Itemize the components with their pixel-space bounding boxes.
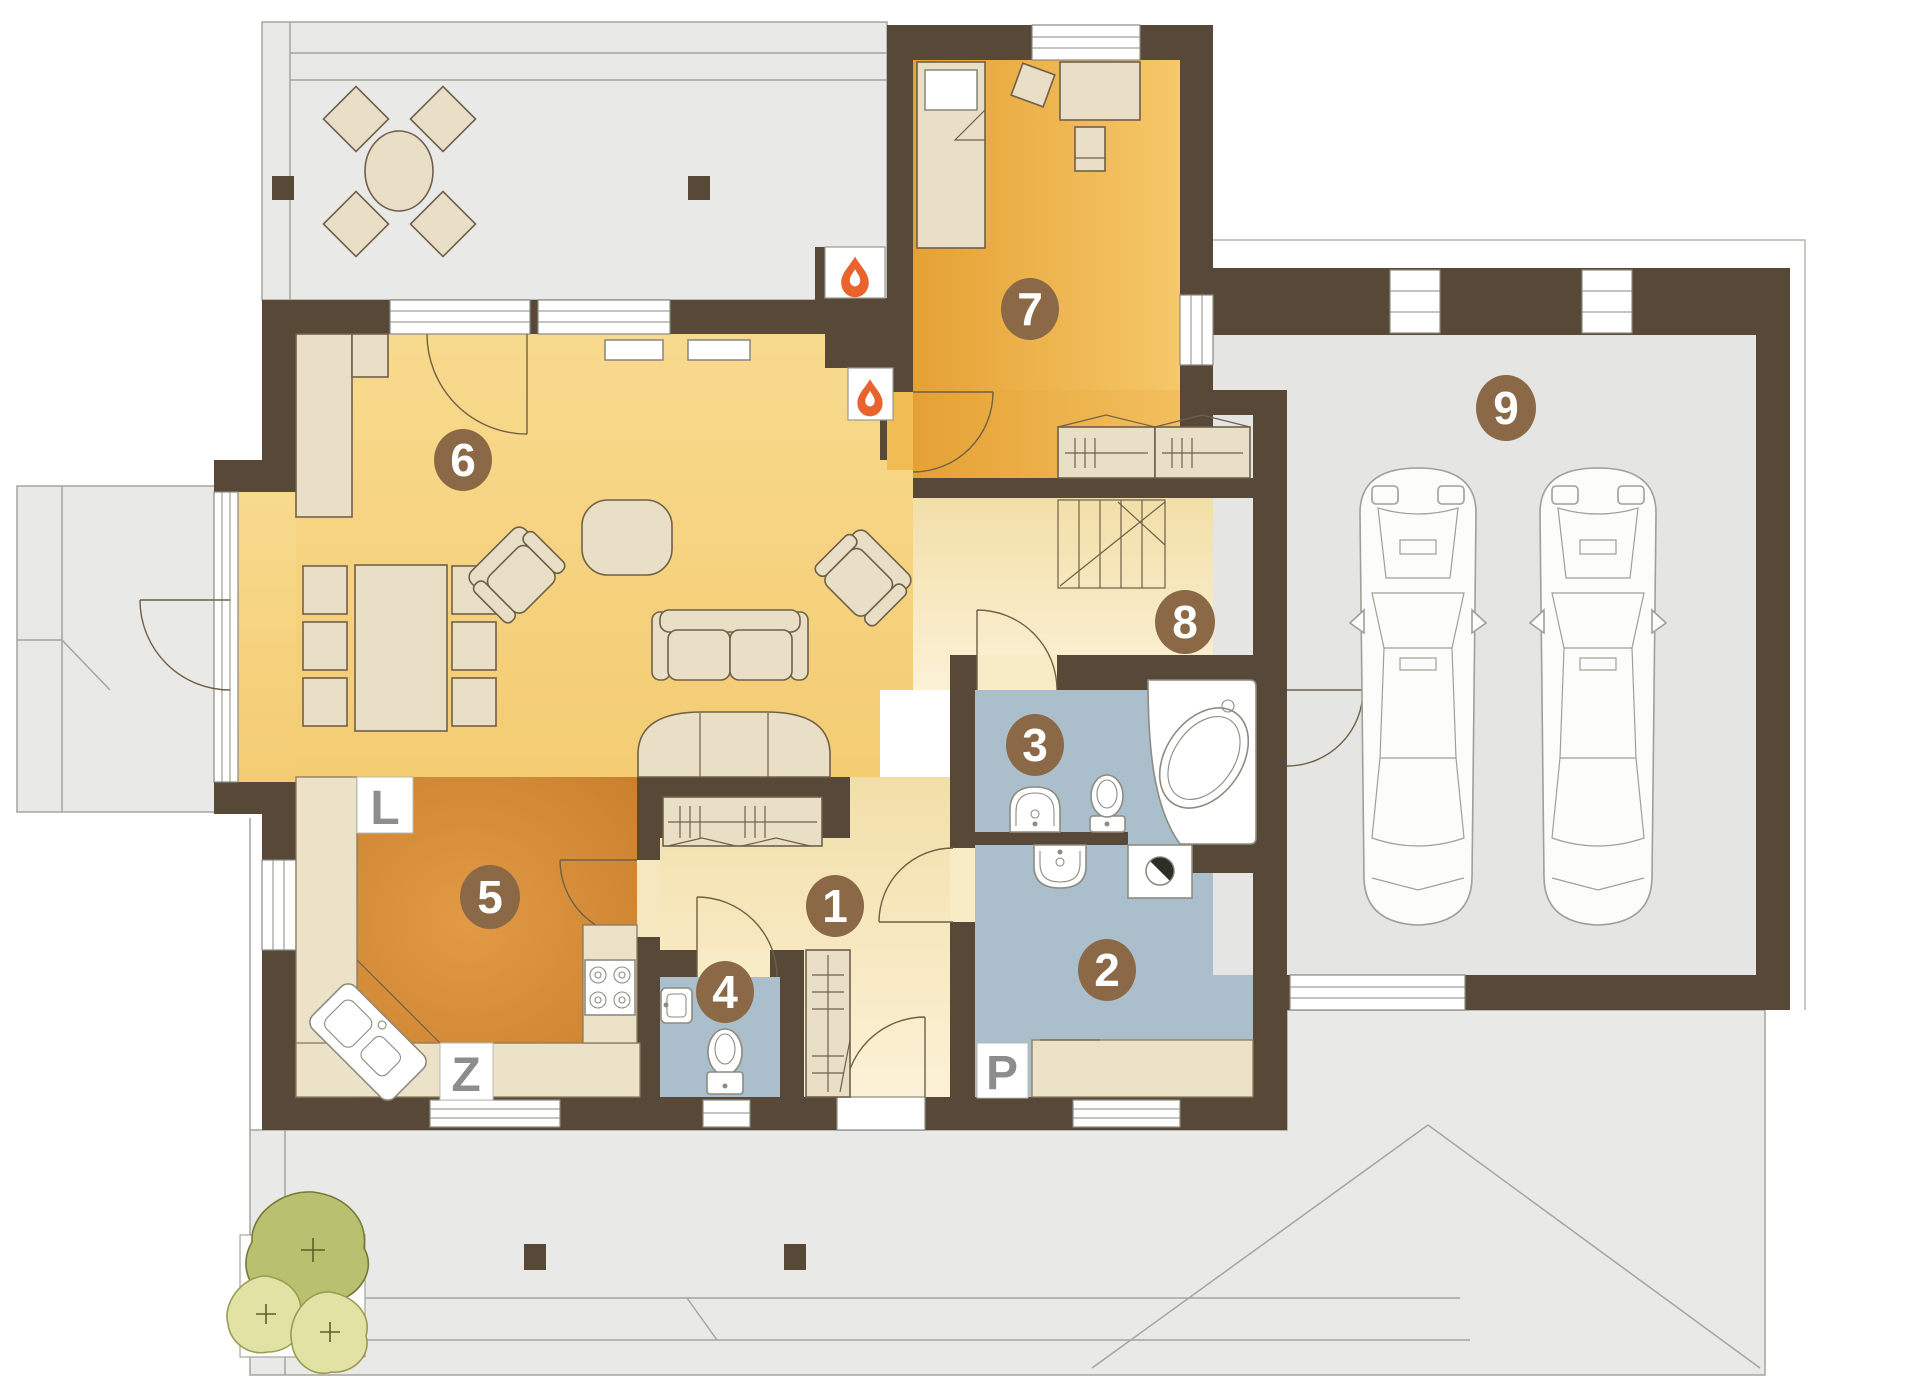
- coffee-table: [582, 500, 672, 575]
- marker-l-label: L: [370, 782, 399, 835]
- marker-z-label: Z: [451, 1049, 480, 1102]
- pillow: [925, 70, 977, 110]
- front-door-opening: [837, 1097, 925, 1130]
- fireplace-living: [848, 368, 893, 420]
- marker-L: L: [357, 777, 413, 835]
- living-shelf: [296, 334, 352, 517]
- room-marker-3: 3: [1006, 714, 1064, 776]
- side-terrace: [17, 486, 230, 812]
- room-marker-5: 5: [460, 865, 520, 929]
- radiator: [605, 340, 663, 360]
- marker-p-label: P: [986, 1047, 1018, 1100]
- floor-plan-page: L Z P 1 2 3 4 5: [0, 0, 1920, 1381]
- room-number: 5: [477, 871, 503, 923]
- terrace-table: [365, 131, 433, 211]
- toilet: [707, 1029, 743, 1094]
- room-number: 6: [450, 434, 476, 486]
- garden-bushes: [227, 1192, 368, 1373]
- toilet: [1090, 775, 1125, 832]
- dining-table: [355, 565, 447, 731]
- room-marker-7: 7: [1001, 278, 1059, 340]
- terrace: [262, 22, 887, 300]
- fireplace-terrace: [825, 247, 885, 298]
- entry-wardrobe: [806, 950, 850, 1097]
- washing-machine-icon: [1128, 845, 1192, 898]
- room-number: 4: [712, 966, 738, 1018]
- dining-set: [303, 565, 496, 731]
- terrace-post: [688, 176, 710, 200]
- nightstand: [1075, 127, 1105, 171]
- room-marker-1: 1: [806, 875, 864, 937]
- sofa: [652, 610, 808, 680]
- dining-bay-floor: [230, 492, 296, 782]
- stove: [585, 960, 635, 1015]
- room-marker-4: 4: [696, 961, 754, 1023]
- room-marker-2: 2: [1078, 939, 1136, 1001]
- living-shelf: [352, 334, 388, 377]
- room-marker-9: 9: [1476, 375, 1536, 441]
- room-number: 3: [1022, 719, 1048, 771]
- garage-door: [1290, 975, 1465, 1010]
- desk: [1060, 62, 1140, 120]
- room-number: 1: [822, 880, 848, 932]
- porch-post: [784, 1244, 806, 1270]
- terrace-post: [272, 176, 294, 200]
- room-number: 2: [1094, 944, 1120, 996]
- sideboard: [638, 712, 830, 777]
- radiator: [688, 340, 750, 360]
- room-number: 7: [1017, 283, 1043, 335]
- room-number: 9: [1493, 382, 1519, 434]
- hall-wardrobe: [663, 797, 822, 846]
- room-marker-6: 6: [434, 429, 492, 491]
- marker-Z: Z: [440, 1043, 493, 1102]
- porch-post: [524, 1244, 546, 1270]
- room-marker-8: 8: [1155, 590, 1215, 654]
- room-number: 8: [1172, 596, 1198, 648]
- marker-P: P: [977, 1043, 1028, 1100]
- utility-counter: [1032, 1040, 1253, 1097]
- floor-plan-drawing: L Z P 1 2 3 4 5: [0, 0, 1920, 1381]
